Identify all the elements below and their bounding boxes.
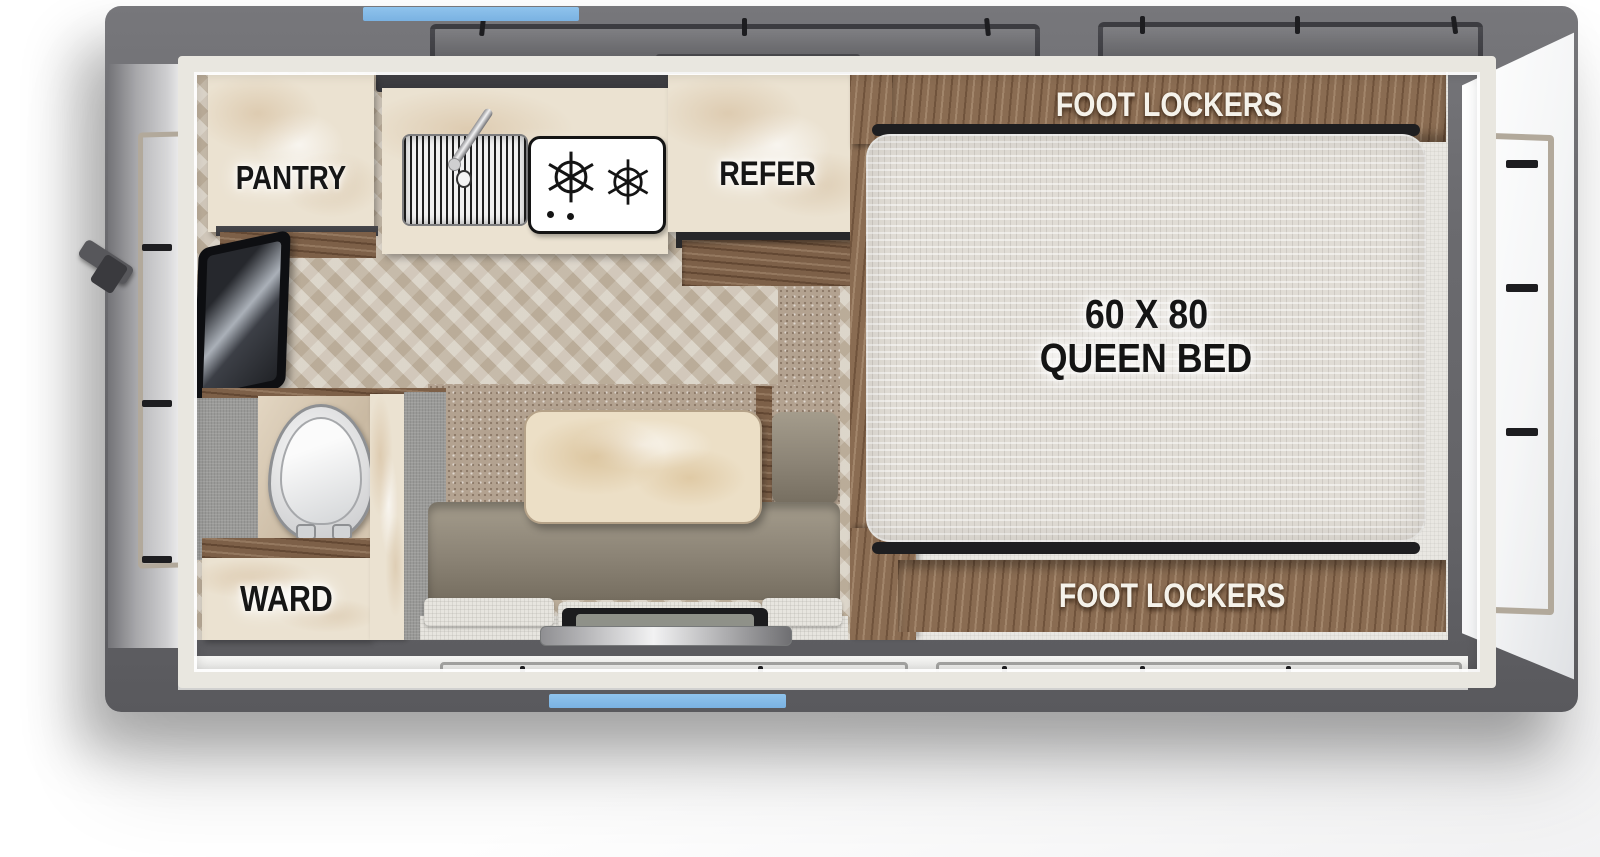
window-latch-icon xyxy=(142,400,172,407)
window-latch-icon xyxy=(1295,16,1300,34)
entry-door-accent xyxy=(549,694,786,708)
interior-wall-trim xyxy=(178,56,1496,688)
window-latch-icon xyxy=(142,556,172,563)
window-latch-icon xyxy=(742,18,747,36)
floorplan-canvas: PANTRY REFER xyxy=(0,0,1600,857)
window-latch-icon xyxy=(1140,16,1145,34)
window-latch-icon xyxy=(1506,284,1538,292)
window-latch-icon xyxy=(1506,428,1538,436)
window-latch-icon xyxy=(1506,160,1538,168)
window-latch-icon xyxy=(142,244,172,251)
top-accent-window xyxy=(363,7,579,21)
front-window-decal xyxy=(1488,133,1554,615)
